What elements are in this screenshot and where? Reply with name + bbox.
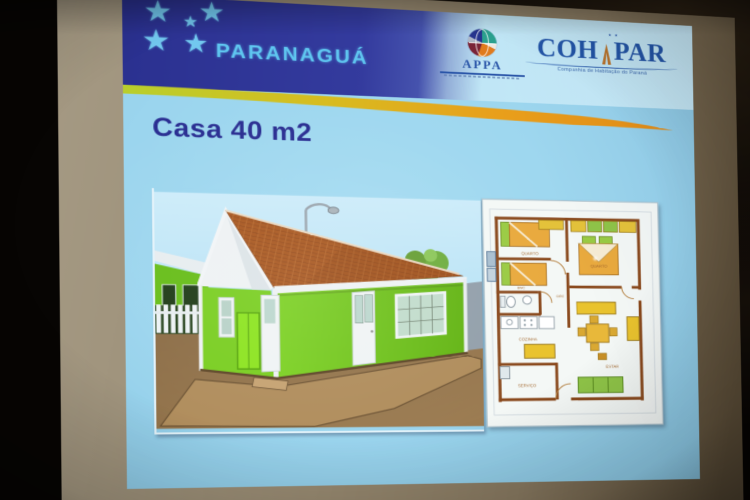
room-label: COZINHA bbox=[519, 337, 537, 341]
room-label: CIRC bbox=[556, 295, 564, 299]
floor-plan-image: QUARTO QUARTO BWC CIRC COZINHA ESTAR SER… bbox=[482, 199, 664, 428]
room-label: SERVIÇO bbox=[518, 383, 537, 388]
bedroom1-furniture bbox=[500, 219, 563, 247]
slide-title: Casa 40 m2 bbox=[152, 112, 312, 148]
side-door bbox=[352, 291, 375, 366]
room-label: QUARTO bbox=[590, 264, 607, 269]
cohapar-logo: ⋆⋆ COH PAR Companhia de Habitação do Par… bbox=[522, 35, 680, 78]
appa-globe-icon bbox=[468, 28, 497, 57]
cohapar-word-start: COH bbox=[537, 36, 599, 65]
city-title: PARANAGUÁ bbox=[216, 40, 369, 70]
light-speck bbox=[593, 257, 597, 261]
bathroom-fixtures bbox=[500, 296, 531, 308]
laundry-tub bbox=[500, 367, 510, 379]
projection-perspective-wrapper: ★ ★ ★ ★ ★ PARANAGUÁ APPA ⋆⋆ COH bbox=[122, 0, 700, 489]
presentation-slide: ★ ★ ★ ★ ★ PARANAGUÁ APPA ⋆⋆ COH bbox=[122, 0, 700, 489]
room-label: BWC bbox=[517, 286, 525, 290]
house-3d-rendering bbox=[152, 188, 484, 434]
room-label: QUARTO bbox=[521, 251, 539, 256]
appa-logo: APPA bbox=[437, 27, 526, 80]
grid-window bbox=[395, 290, 447, 339]
exterior-fixture bbox=[487, 252, 496, 282]
living-furniture bbox=[576, 302, 640, 393]
cohapar-word-end: PAR bbox=[614, 40, 667, 68]
front-door bbox=[261, 295, 280, 372]
bedroom2-furniture bbox=[501, 263, 546, 286]
cohapar-house-a-icon bbox=[599, 43, 614, 65]
star-icon: ★ bbox=[183, 30, 209, 57]
green-gate-panel bbox=[237, 313, 260, 369]
star-icon: ★ bbox=[142, 26, 171, 57]
star-icon: ★ bbox=[198, 0, 225, 27]
cohapar-stars-marks: ⋆⋆ bbox=[608, 33, 621, 39]
front-window bbox=[219, 298, 235, 338]
room-label: ESTAR bbox=[606, 364, 619, 368]
photo-of-projected-slide: ★ ★ ★ ★ ★ PARANAGUÁ APPA ⋆⋆ COH bbox=[0, 0, 750, 500]
floor-plan-drawing: QUARTO QUARTO BWC CIRC COZINHA ESTAR SER… bbox=[483, 200, 663, 427]
